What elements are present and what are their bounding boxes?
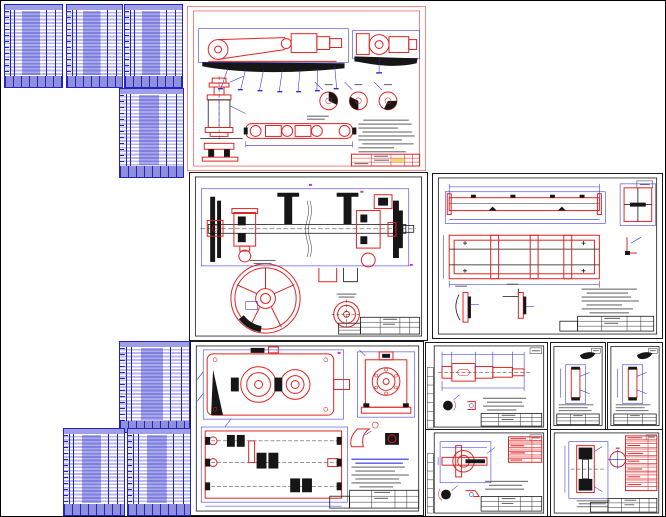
motor-end-view [352,31,419,74]
frame-drawing-graphics [433,174,662,338]
format-label [637,181,653,188]
section-detail-view [202,143,238,161]
title-block [481,496,542,511]
title-block [339,317,420,334]
spec-table-6 [63,428,125,516]
hub-circle-detail [608,448,628,470]
isometric-sketch [637,352,652,359]
shaft-assembly-sheet [189,172,428,341]
technical-notes [559,404,594,411]
technical-notes [483,398,526,411]
title-block [330,490,419,508]
shaft-section-details [443,395,475,411]
small-wheel-detail-view [332,294,362,330]
gear-detail-graphics [551,430,662,516]
technical-notes [351,459,408,488]
spec-table-7 [127,428,191,516]
pulley-wheel-front-view [231,260,300,333]
technical-notes [582,289,639,314]
part-view [561,365,590,404]
parameter-table [508,437,541,462]
spec-table-4 [119,88,184,178]
detail-a4-sheet-1 [550,342,606,431]
gearbox-side-view [197,347,349,427]
shaft-section-view [200,184,415,267]
assembly-drawing-sheet [187,6,426,171]
weld-section-b [503,284,535,319]
vertical-assembly-view [200,76,245,140]
small-detail-views [351,422,399,447]
detail-a4-1-graphics [551,343,605,430]
frame-drawing-sheet [432,173,663,339]
beam-cross-section [620,184,656,225]
spec-table-5 [119,341,190,433]
detail-a4-sheet-2 [607,342,663,431]
technical-notes [616,404,651,411]
channel-details [319,268,358,282]
gearbox-drawing-graphics [191,342,423,515]
title-block [560,316,654,331]
stepped-shaft-view [438,352,532,391]
format-label [530,348,542,354]
section-details [439,486,480,501]
part-view [618,365,647,404]
roller-assembly-view [244,116,357,148]
technical-notes [577,500,610,507]
title-block [614,414,656,425]
margin-stamp-column [427,453,433,513]
gear-section-view [565,442,608,499]
gearbox-plan-section [201,427,347,506]
technical-notes [485,481,528,490]
gear-detail-sheet [550,429,663,517]
title-block [351,154,419,166]
drawing-package-canvas [0,0,666,517]
clamp-detail-views [315,82,397,110]
shaft-detail-graphics [426,343,547,430]
shaft-assembly-graphics [190,173,427,340]
isometric-sketch [580,352,595,359]
spec-table-2 [66,4,123,88]
coupling-detail-sheet [425,429,548,517]
detail-a4-2-graphics [608,343,662,430]
frame-plan-view [443,235,599,287]
spec-table-3 [124,4,183,88]
gearbox-drawing-sheet [190,341,424,516]
gearbox-end-view [357,350,414,417]
title-block [481,413,542,426]
margin-stamp-column [427,367,433,428]
coupling-view [438,442,495,483]
shaft-detail-sheet [425,342,548,431]
technical-notes [358,120,414,153]
gear-parameter-table [626,436,657,491]
assembly-drawing-graphics [188,7,425,170]
weld-section-a [455,286,479,323]
beam-side-view [445,184,605,224]
corner-detail [625,237,641,255]
coupling-detail-graphics [426,430,547,516]
spec-table-1 [4,4,63,88]
title-block [557,414,599,425]
